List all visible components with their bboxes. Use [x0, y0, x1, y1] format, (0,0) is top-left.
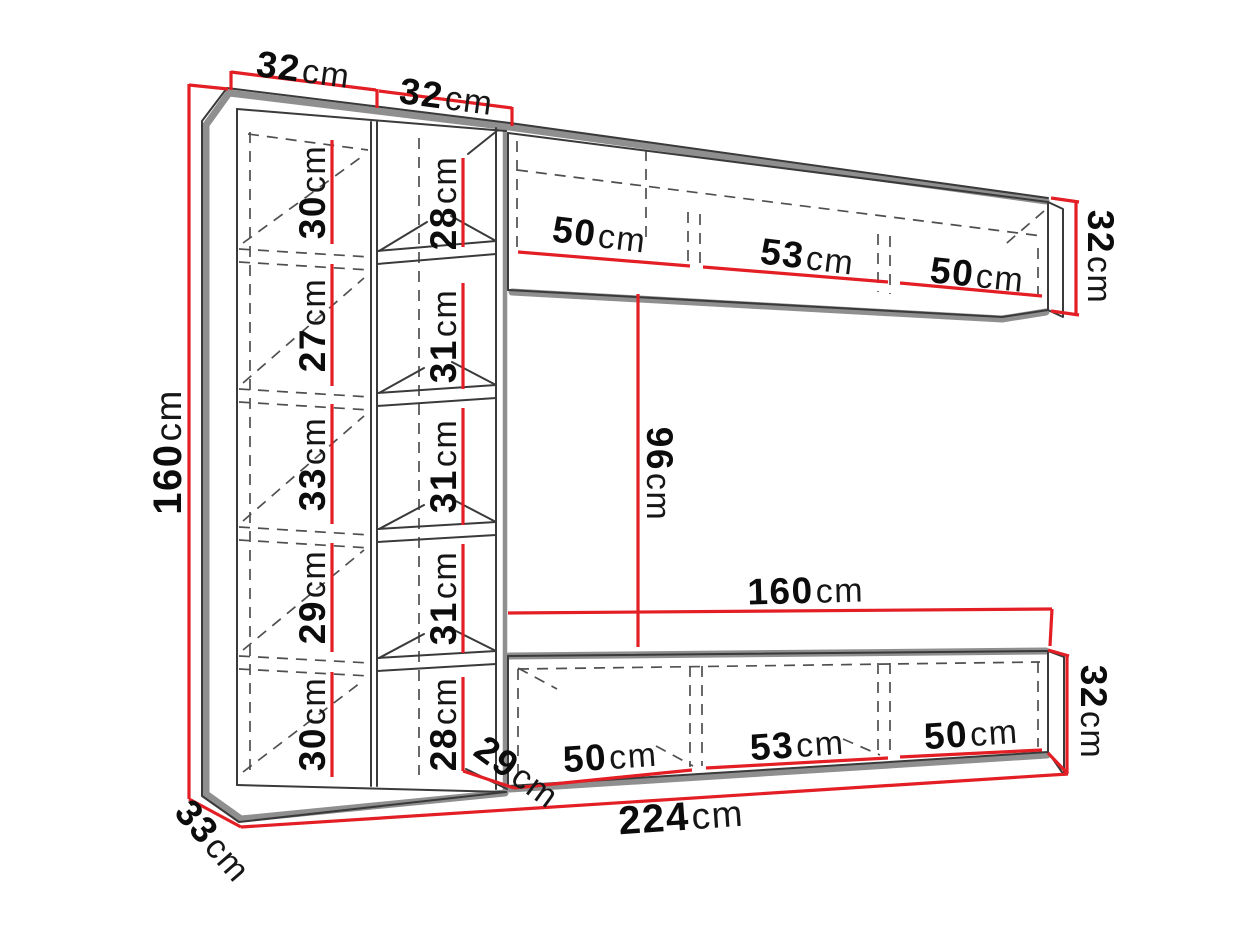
- dim-top-cabinet-height: 32cm: [1080, 210, 1121, 304]
- dim-bottom-cabinet-section-1: 50cm: [562, 733, 659, 780]
- dim-col-a-section-5: 30cm: [292, 677, 333, 771]
- dim-top-cabinet-section-2: 53cm: [758, 230, 857, 282]
- dim-col-b-section-4: 31cm: [423, 551, 464, 645]
- dim-col-a-section-3: 33cm: [292, 417, 333, 511]
- dim-bottom-cabinet-depth: 29cm: [467, 728, 568, 817]
- dim-gap-height: 96cm: [639, 427, 680, 521]
- dim-total-height: 160cm: [146, 389, 190, 515]
- dim-bottom-cabinet-section-3: 50cm: [923, 710, 1020, 757]
- dim-col-a-section-2: 27cm: [292, 278, 333, 372]
- dim-total-width: 224cm: [617, 791, 745, 844]
- dim-col-b-section-5: 28cm: [423, 677, 464, 771]
- dim-col-b-section-1: 28cm: [423, 156, 464, 250]
- dim-side-depth: 33cm: [167, 792, 260, 890]
- dim-lower-cabinet-width: 160cm: [747, 568, 865, 612]
- dim-top-cabinet-section-3: 50cm: [928, 249, 1026, 300]
- diagram-canvas: 32cm 32cm 160cm 30cm 27cm 33cm 29cm 30cm…: [0, 0, 1240, 930]
- dim-col-b-section-2: 31cm: [423, 289, 464, 383]
- furniture-dimension-diagram: 32cm 32cm 160cm 30cm 27cm 33cm 29cm 30cm…: [0, 0, 1240, 930]
- dim-col-a-width: 32cm: [254, 43, 353, 96]
- dim-bottom-cabinet-section-2: 53cm: [749, 721, 846, 768]
- dim-col-a-section-1: 30cm: [292, 145, 333, 239]
- dim-col-b-section-3: 31cm: [423, 419, 464, 513]
- dim-top-cabinet-section-1: 50cm: [550, 208, 649, 260]
- dim-col-a-section-4: 29cm: [292, 550, 333, 644]
- dim-bottom-cabinet-height: 32cm: [1073, 665, 1114, 759]
